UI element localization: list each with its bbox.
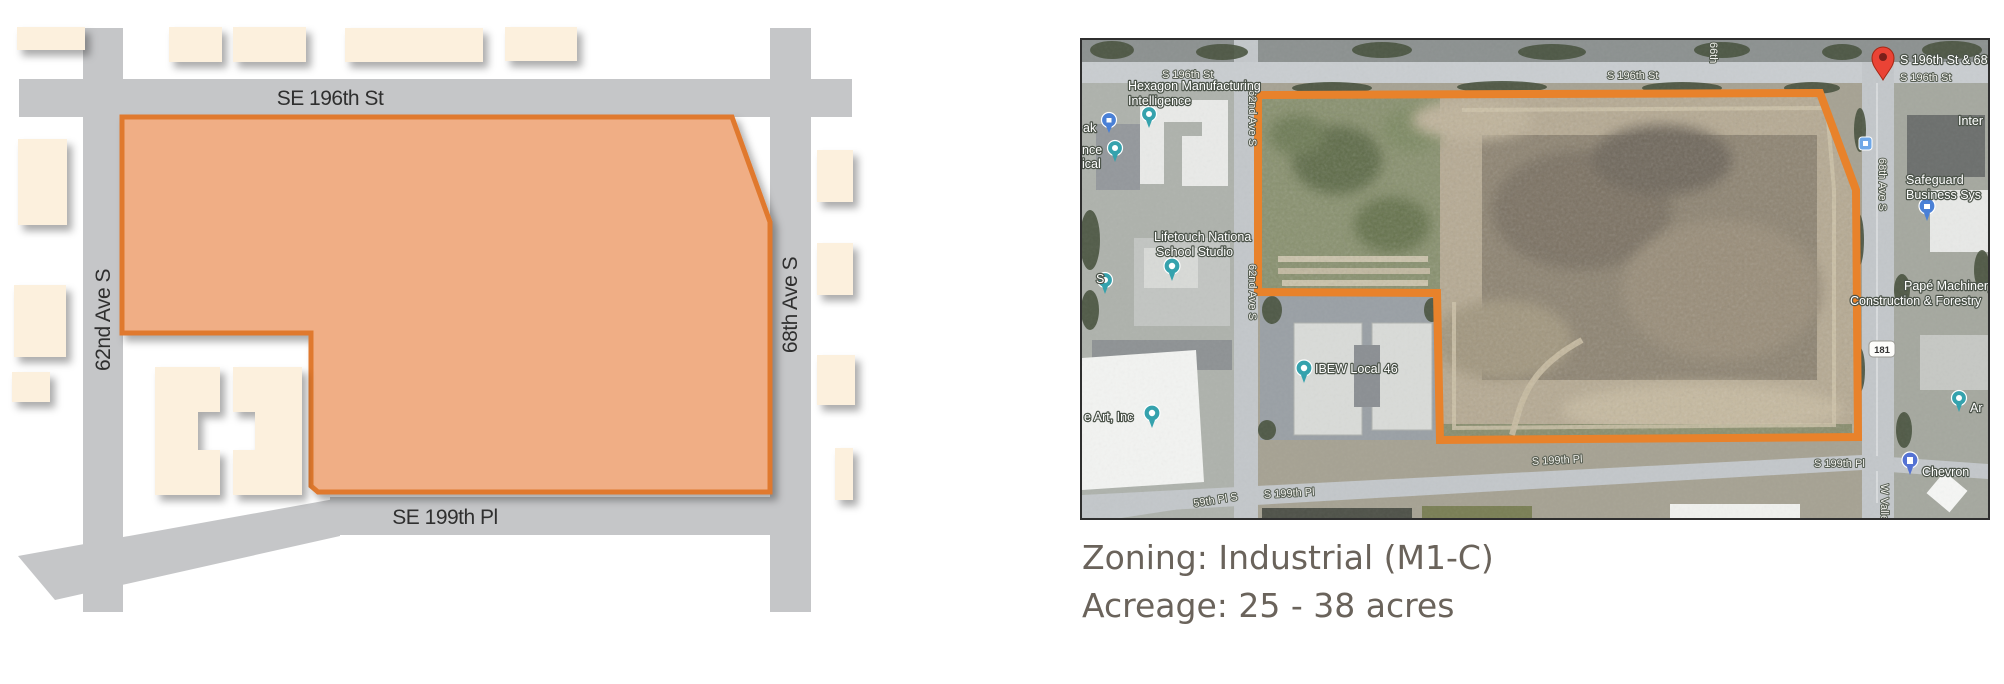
satellite-map-frame: 181 S 196th St S 196th St — [1080, 38, 1990, 520]
bus-stop-icon — [1859, 137, 1872, 150]
sat-label-68th: 68th Ave S — [1876, 158, 1888, 211]
sat-label-ar: Ar — [1970, 401, 1983, 415]
building — [835, 448, 853, 500]
building — [233, 27, 306, 62]
sat-label-s199-right: S 199th Pl — [1814, 458, 1865, 470]
building — [817, 243, 853, 295]
building — [817, 150, 853, 202]
sat-label-hexagon-2: Intelligence — [1128, 94, 1191, 108]
sat-label-ibew: IBEW Local 46 — [1315, 362, 1398, 376]
zoning-text: Zoning: Industrial (M1-C) — [1082, 534, 1494, 582]
road-se199-diagonal — [18, 498, 340, 600]
sat-label-edge-ak: ak — [1083, 121, 1097, 135]
building — [345, 28, 483, 62]
acreage-text: Acreage: 25 - 38 acres — [1082, 582, 1494, 630]
sat-label-inter: Inter — [1958, 114, 1983, 128]
sat-label-lifetouch-2: School Studio — [1156, 245, 1233, 259]
route-shield-text: 181 — [1874, 345, 1891, 356]
satellite-map: 181 S 196th St S 196th St — [1082, 40, 1988, 518]
sat-label-pape-2: Construction & Forestry — [1850, 294, 1982, 308]
sat-label-hexagon-1: Hexagon Manufacturing — [1128, 79, 1261, 93]
sat-label-edge-s: S — [1096, 272, 1104, 286]
caption-block: Zoning: Industrial (M1-C) Acreage: 25 - … — [1082, 534, 1494, 630]
sat-label-art: e Art, Inc — [1084, 410, 1133, 424]
sat-label-s196-right: S 196th St — [1900, 72, 1951, 84]
street-label-se199: SE 199th Pl — [392, 506, 497, 529]
sat-label-pape-1: Papé Machinery — [1904, 279, 1988, 293]
road-se196 — [19, 79, 852, 117]
building — [817, 355, 855, 405]
sat-label-safeguard-2: Business Sys — [1906, 188, 1981, 202]
sat-label-62nd-upper: 62nd Ave S — [1246, 90, 1258, 146]
building-bracket-right — [233, 367, 302, 495]
sat-label-edge-nce: nce — [1082, 143, 1102, 157]
sat-label-pin-title: S 196th St & 68th Ave S — [1900, 53, 1988, 67]
building — [12, 372, 50, 402]
sat-label-62nd-lower: 62nd Ave S — [1246, 264, 1258, 320]
sat-label-chevron: Chevron — [1922, 465, 1969, 479]
sat-label-edge-ical: ical — [1082, 157, 1101, 171]
building — [169, 27, 222, 62]
building — [18, 139, 67, 225]
street-label-se196: SE 196th St — [277, 87, 384, 110]
sat-label-66th: 66th — [1707, 42, 1719, 63]
sat-label-lifetouch-1: Lifetouch Nationa — [1154, 230, 1251, 244]
building — [14, 285, 66, 357]
slide-canvas: SE 196th St SE 199th Pl 62nd Ave S 68th … — [0, 0, 2004, 684]
building-bracket-left — [155, 367, 220, 495]
building — [17, 27, 85, 50]
parcel-outline — [122, 117, 770, 492]
street-label-62nd: 62nd Ave S — [92, 268, 115, 371]
sat-label-s196-mid: S 196th St — [1607, 70, 1658, 82]
building — [505, 27, 577, 61]
sat-label-wvalley: W Valley Hwy — [1878, 484, 1890, 518]
sat-label-safeguard-1: Safeguard — [1906, 173, 1964, 187]
route-shield-181: 181 — [1869, 341, 1895, 357]
site-diagram: SE 196th St SE 199th Pl 62nd Ave S 68th … — [0, 0, 910, 684]
street-label-68th: 68th Ave S — [779, 256, 802, 353]
